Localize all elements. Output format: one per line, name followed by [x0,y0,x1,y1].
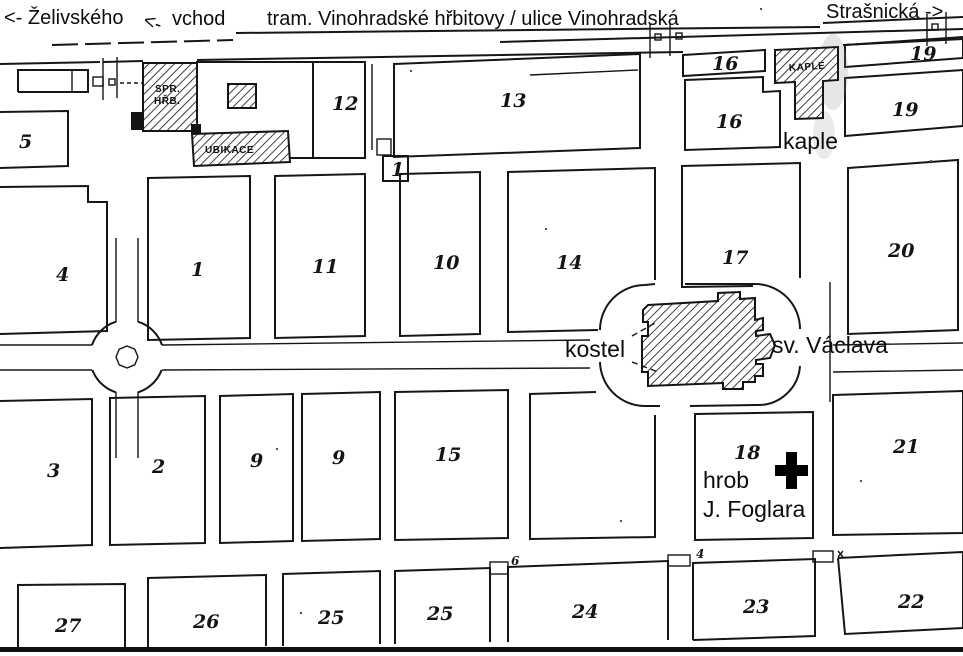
plot-11-number: 11 [312,256,338,278]
church-building [632,292,775,389]
plot-27-number: 27 [54,615,81,637]
street-label-strasnicka: Strašnická -> [826,1,943,23]
plot-9-west-number: 9 [250,450,263,472]
chapel-label: kaple [783,128,838,154]
admin-building-label-1: SPR. [155,84,180,95]
cemetery-map: <- Želivského <- vchod tram. Vinohradské… [0,0,963,656]
plot-10-number: 10 [433,252,459,274]
entrance-label: vchod [172,8,225,30]
map-bottom-border [0,647,963,652]
church-label-name: sv. Václava [772,332,888,358]
small-hatched-building [228,84,256,108]
tram-street-label: tram. Vinohradské hřbitovy / ulice Vinoh… [267,8,680,30]
plot-25-east-number: 25 [426,603,453,625]
plot-16-number: 16 [716,111,742,133]
plot-21-number: 21 [892,436,919,458]
plot-13-number: 13 [500,90,526,112]
gate-1-label: 1 [391,159,404,181]
plot-9-east-number: 9 [332,447,345,469]
plot-17-number: 17 [722,247,748,269]
plot-22-number: 22 [897,591,924,613]
plot-19-strip-number: 19 [910,43,936,65]
plot-3-number: 3 [47,460,60,482]
plot-15-number: 15 [435,444,461,466]
ubikace-label: UBIKACE [205,145,254,156]
plot-4-number: 4 [56,264,69,286]
plot-20-number: 20 [887,240,914,262]
gate-4-label: 4 [696,547,704,561]
plot-12-number: 12 [332,93,358,115]
plot-25-west-number: 25 [317,607,344,629]
plot-2-number: 2 [151,456,165,478]
foglar-grave-label-1: hrob [703,467,749,493]
street-label-zelivskeho: <- Želivského [4,6,124,29]
admin-building-label-2: HŘB. [154,94,180,107]
plot-16-strip-number: 16 [712,53,738,75]
plot-5-number: 5 [19,131,32,153]
plot-14-number: 14 [556,252,582,274]
plot-24-number: 24 [571,601,598,623]
ubikace-building: UBIKACE [192,131,290,166]
church-label-prefix: kostel [565,336,625,362]
plot-19-number: 19 [892,99,918,121]
plot-26-number: 26 [192,611,219,633]
plot-18-number: 18 [734,442,760,464]
foglar-grave-label-2: J. Foglara [703,496,805,522]
plot-1-number: 1 [191,259,204,281]
plot-23-number: 23 [742,596,769,618]
